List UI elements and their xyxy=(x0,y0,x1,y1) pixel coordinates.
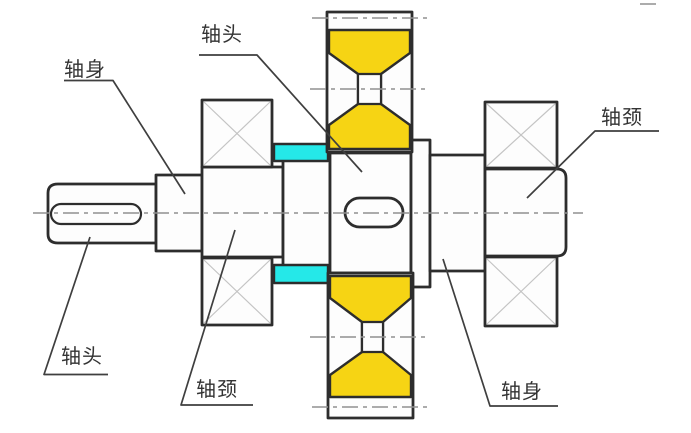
bearing-left-bottom xyxy=(202,258,272,325)
wheel-top xyxy=(310,12,430,152)
spacer-ring-top xyxy=(274,144,328,161)
diagram-canvas: 轴身 轴头 轴颈 轴头 轴颈 轴身 xyxy=(0,0,691,433)
shaft-structure-diagram: 轴身 轴头 轴颈 轴头 轴颈 轴身 xyxy=(0,0,691,433)
bearing-left-top xyxy=(202,100,272,167)
bearing-right-bottom xyxy=(485,257,557,326)
label-text: 轴颈 xyxy=(601,106,643,129)
shaft-journal-left xyxy=(202,167,283,257)
spacer-ring-bottom xyxy=(274,265,328,283)
label-shaft-head-bottom-left: 轴头 xyxy=(44,237,108,375)
label-text: 轴头 xyxy=(61,345,103,368)
keyway-slot-left xyxy=(51,204,141,224)
label-text: 轴头 xyxy=(201,23,243,46)
bearing-right-top xyxy=(485,102,557,168)
label-text: 轴颈 xyxy=(196,378,238,401)
label-text: 轴身 xyxy=(64,58,106,81)
label-text: 轴身 xyxy=(501,380,543,403)
wheel-bottom xyxy=(310,273,430,418)
